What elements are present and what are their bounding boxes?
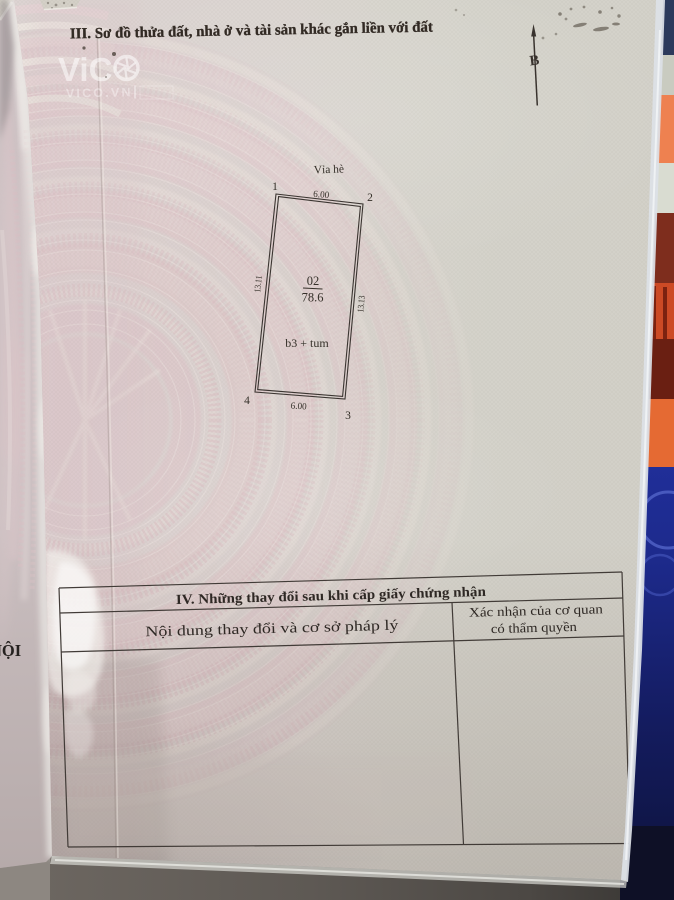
svg-text:3: 3 [345, 410, 351, 422]
svg-text:78.6: 78.6 [302, 291, 324, 305]
svg-text:b3 + tum: b3 + tum [285, 336, 329, 350]
svg-text:NỘI: NỘI [0, 641, 21, 660]
svg-text:có thẩm quyền: có thẩm quyền [491, 619, 578, 636]
svg-text:VICO.VN: VICO.VN [66, 85, 133, 100]
svg-text:02: 02 [307, 274, 320, 288]
svg-text:6.00: 6.00 [290, 401, 307, 412]
svg-text:4: 4 [244, 395, 250, 407]
svg-text:2: 2 [367, 192, 373, 204]
svg-text:1: 1 [272, 181, 278, 193]
svg-text:13.13: 13.13 [355, 295, 366, 313]
svg-text:ViC: ViC [58, 51, 112, 88]
svg-text:Vỉa hè: Vỉa hè [314, 163, 345, 176]
svg-text:13.11: 13.11 [252, 275, 264, 293]
svg-text:6.00: 6.00 [313, 190, 330, 201]
